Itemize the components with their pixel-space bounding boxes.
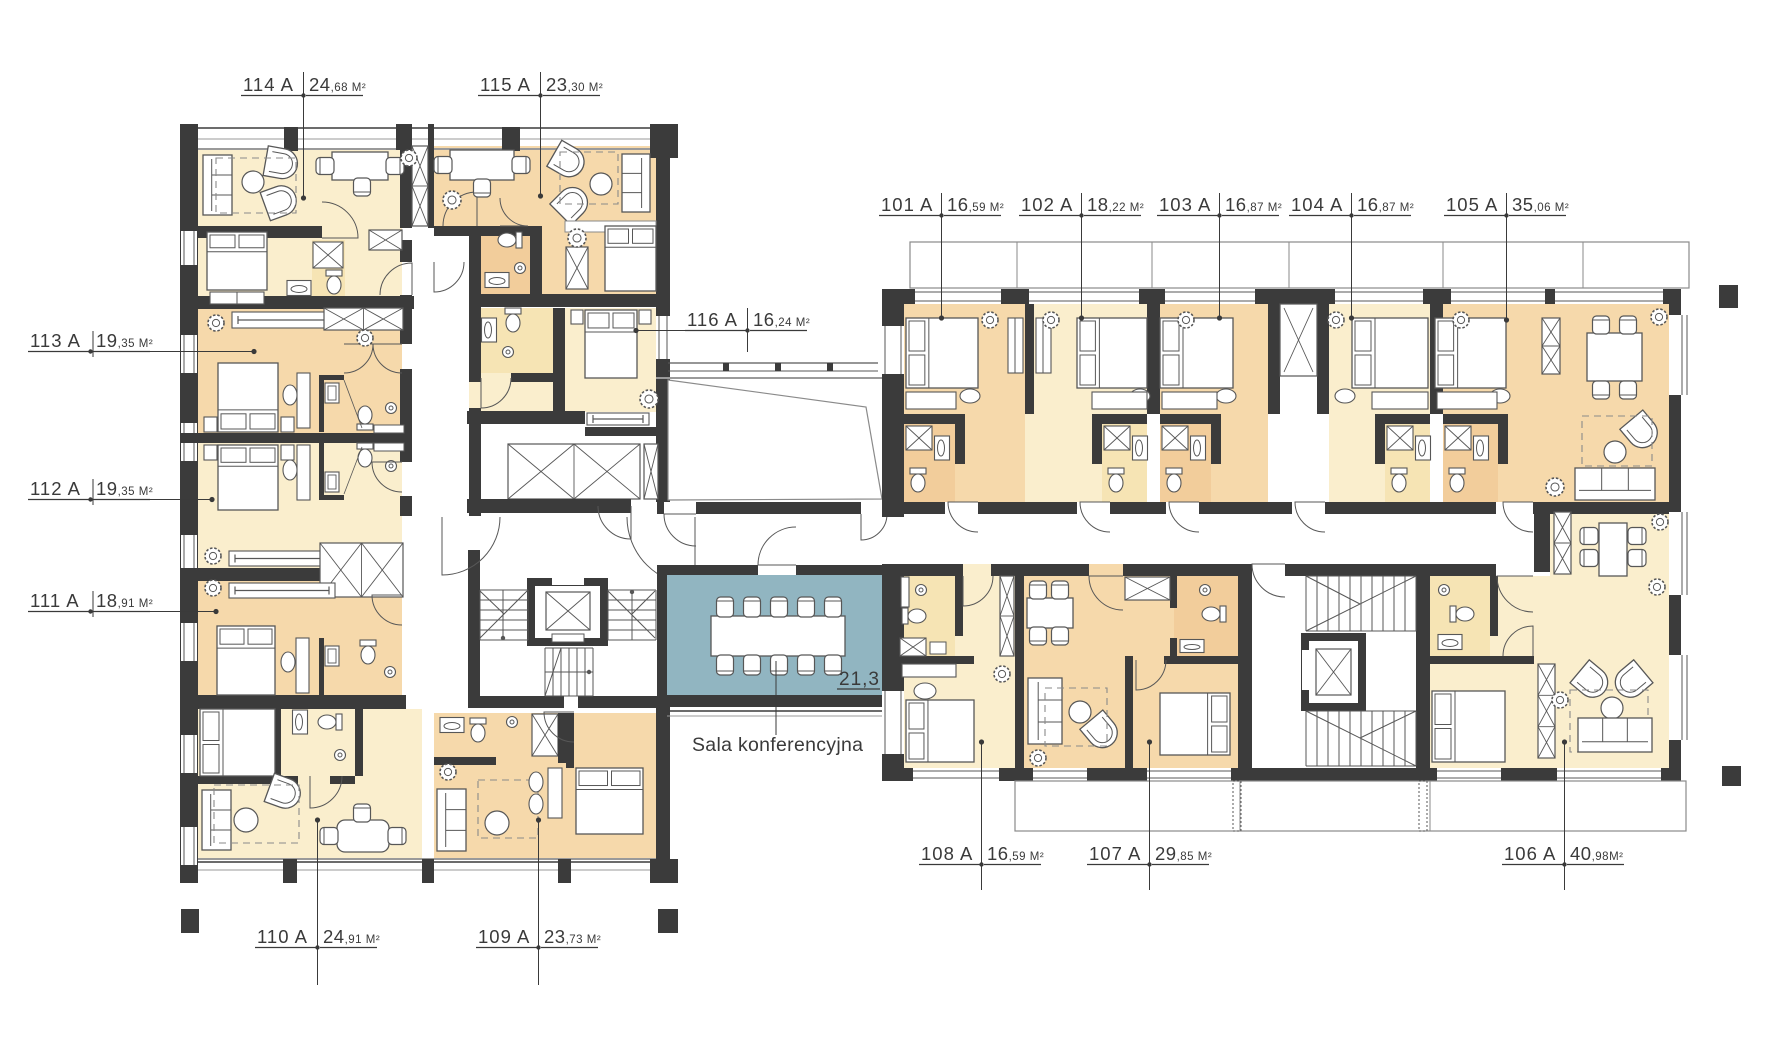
- svg-text:108 A: 108 A: [921, 843, 973, 864]
- svg-text:114 A: 114 A: [243, 74, 294, 95]
- svg-text:112 A: 112 A: [30, 478, 81, 499]
- svg-text:101 A: 101 A: [881, 194, 933, 215]
- svg-text:110 A: 110 A: [257, 926, 308, 947]
- svg-text:102 A: 102 A: [1021, 194, 1073, 215]
- svg-text:106 A: 106 A: [1504, 843, 1556, 864]
- svg-text:109 A: 109 A: [478, 926, 530, 947]
- svg-text:Sala konferencyjna: Sala konferencyjna: [692, 734, 863, 756]
- svg-text:21,3: 21,3: [839, 669, 880, 690]
- svg-text:105 A: 105 A: [1446, 194, 1498, 215]
- svg-text:103 A: 103 A: [1159, 194, 1211, 215]
- svg-text:116 A: 116 A: [687, 309, 738, 330]
- svg-text:107 A: 107 A: [1089, 843, 1141, 864]
- svg-text:104 A: 104 A: [1291, 194, 1343, 215]
- svg-text:113 A: 113 A: [30, 330, 81, 351]
- svg-text:111 A: 111 A: [30, 590, 80, 611]
- svg-text:115 A: 115 A: [480, 74, 531, 95]
